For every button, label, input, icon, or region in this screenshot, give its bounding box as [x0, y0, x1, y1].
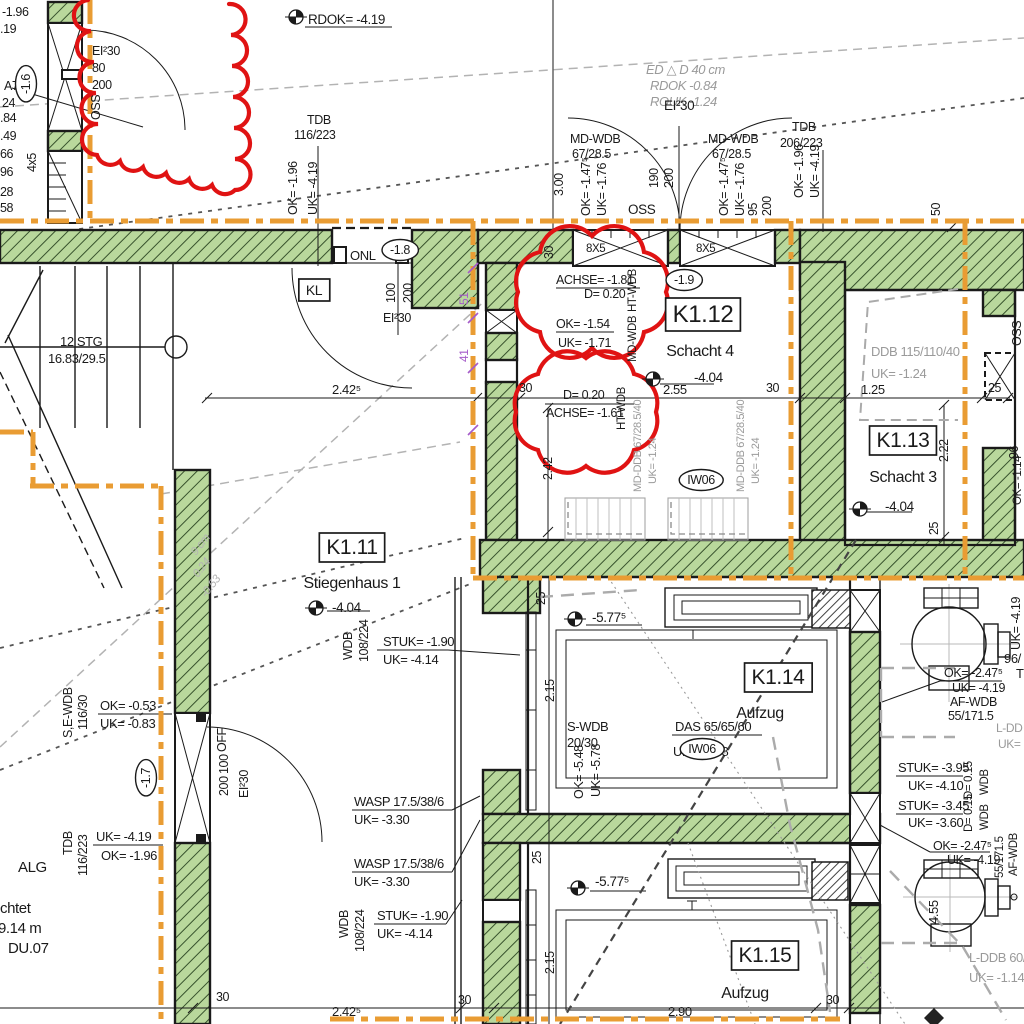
annotation-label: UK= -4.19: [96, 829, 151, 844]
annotation-label: UK= -1.14: [969, 970, 1024, 985]
annotation-label: 55/171.5: [948, 709, 994, 723]
hatched-niche: [812, 862, 848, 900]
annotation-label: 25: [988, 381, 1002, 395]
annotation-label: 200: [217, 776, 231, 796]
annotation-label: 190: [647, 168, 661, 188]
annotation-label: DU.07: [8, 940, 49, 957]
annotation-label: D= 0.20: [584, 287, 626, 301]
annotation-label: .84: [0, 111, 17, 125]
annotation-label: OK= -1.96: [286, 161, 300, 215]
annotation-label: MD-DDB 67/28.5/40: [632, 399, 644, 492]
annotation-label: DDB 115/110/40: [871, 344, 960, 359]
room-name: Aufzug: [721, 985, 768, 1002]
annotation-label: 3.00: [552, 173, 566, 196]
annotation-label: L-DDB 60/: [969, 950, 1024, 965]
room-name: Stiegenhaus 1: [303, 575, 401, 592]
annotation-label: 80: [92, 61, 106, 75]
level-annotation: RDOK= -4.19: [308, 12, 385, 27]
annotation-label: -5.77⁵: [595, 874, 629, 889]
annotation-label: 24: [2, 96, 16, 110]
annotation-label: 50: [929, 202, 943, 216]
annotation-label: MD-WDB: [627, 315, 639, 362]
level-bubble: -1.9: [674, 273, 694, 287]
annotation-label: UK= -3.30: [354, 812, 409, 827]
annotation-label: 2.42⁵: [332, 382, 361, 397]
level-bubble: -1.6: [19, 74, 33, 94]
room-level: -4.04: [885, 499, 915, 514]
annotation-label: OK= -1.47⁵: [717, 157, 731, 216]
annotation-label: 116/30: [76, 695, 90, 730]
annotation-label: ONL: [350, 248, 376, 263]
annotation-label: 25: [530, 850, 544, 864]
annotation-label: .19: [0, 22, 17, 36]
annotation-label: UK= -1.24: [871, 366, 926, 381]
room-level: -4.04: [694, 370, 724, 385]
room-tag-k1-14: K1.14: [752, 666, 806, 689]
floor-plan-canvas: -1.96.19A7-1.624.84.49669628584x5EI²3080…: [0, 0, 1024, 1024]
annotation-label: UK= -1.71: [558, 336, 611, 350]
annotation-label: 66: [0, 147, 14, 161]
annotation-label: 200: [760, 196, 774, 216]
annotation-label: .49: [0, 129, 17, 143]
annotation-label: 200: [401, 283, 415, 303]
annotation-label: EI²30: [92, 44, 120, 58]
annotation-label: 100: [217, 754, 231, 774]
annotation-label: OK= -1.14: [1012, 455, 1024, 505]
annotation-label: 108/224: [357, 619, 371, 662]
annotation-label: 2.22: [937, 439, 951, 462]
annotation-label: UK= -1.76: [595, 163, 609, 216]
annotation-label: 2.42⁵: [332, 1004, 361, 1019]
annotation-label: STUK= -3.95: [898, 760, 969, 775]
level-bubble: -1.7: [139, 768, 153, 788]
annotation-label: 25: [534, 591, 548, 605]
annotation-label: 30: [519, 381, 533, 395]
annotation-label: 116/223: [294, 128, 336, 142]
floor-plan: -1.96.19A7-1.624.84.49669628584x5EI²3080…: [0, 0, 1024, 1024]
annotation-label: 108/224: [353, 909, 367, 952]
annotation-label: TD: [1016, 666, 1024, 681]
annotation-label: WDB: [979, 769, 991, 795]
annotation-label: chtet: [0, 900, 32, 917]
annotation-label: UK= -4.19: [952, 681, 1005, 695]
annotation-label: 30: [766, 381, 780, 395]
annotation-label: 2.42: [541, 457, 555, 480]
annotation-label: STUK= -3.45: [898, 798, 969, 813]
annotation-label: RDOK -0.84: [650, 78, 717, 93]
annotation-label: OK= -1.96: [101, 848, 157, 863]
annotation-label: 16.83/29.5: [48, 351, 106, 366]
annotation-label: OK= -5.48: [572, 745, 586, 799]
wall-type-bubble: IW06: [688, 742, 716, 756]
annotation-label: WDB: [341, 632, 355, 660]
annotation-label: ACHSE= -1.81: [556, 273, 634, 287]
annotation-label: OK= -1.96: [792, 144, 806, 198]
annotation-label: MD-WDB: [708, 132, 758, 146]
annotation-label: L-DD: [996, 721, 1023, 735]
annotation-label: EI²30: [383, 311, 411, 325]
annotation-label: 51: [457, 292, 471, 305]
annotation-label: UK= -1.24: [750, 437, 762, 484]
annotation-label: TDB: [307, 113, 331, 127]
annotation-label: WDB: [979, 804, 991, 830]
annotation-label: 96: [0, 165, 14, 179]
wall-type-bubble: IW06: [687, 473, 715, 487]
annotation-label: MD-DDB 67/28.5/40: [735, 399, 747, 492]
annotation-label: TDB: [792, 120, 816, 134]
annotation-label: OK= -2.47⁵: [944, 666, 1003, 680]
annotation-label: EI²30: [237, 770, 251, 798]
annotation-label: UK= -4.14: [383, 652, 438, 667]
annotation-label: 2.55: [663, 382, 687, 397]
annotation-label: UK= -1.76: [733, 163, 747, 216]
annotation-label: 96/: [1004, 651, 1022, 666]
annotation-label: 30: [458, 993, 472, 1007]
annotation-label: 8X5: [586, 243, 605, 255]
annotation-label: 2.15: [543, 951, 557, 974]
annotation-label: OK= -1.47⁵: [579, 157, 593, 216]
annotation-label: UK= -4.10: [908, 778, 963, 793]
annotation-label: UK= -1.24: [647, 437, 659, 484]
annotation-label: TDB: [61, 831, 75, 855]
annotation-label: HT-WDB: [616, 386, 628, 430]
annotation-label: S-WDB: [567, 719, 608, 734]
annotation-label: D= 0.15: [963, 761, 975, 799]
annotation-label: MD-WDB: [570, 132, 620, 146]
annotation-label: WASP 17.5/38/6: [354, 794, 444, 809]
annotation-label: 95: [746, 202, 760, 216]
annotation-label: WDB: [337, 910, 351, 938]
annotation-label: 30: [542, 245, 556, 259]
annotation-label: D= 0.20: [563, 388, 605, 402]
room-tag-k1-12: K1.12: [673, 301, 734, 328]
annotation-label: AF-WDB: [950, 695, 997, 709]
annotation-label: S,E-WDB: [61, 687, 75, 738]
annotation-label: OK= -0.53: [100, 698, 156, 713]
annotation-label: UK= -5.78: [589, 744, 603, 797]
annotation-label: OFF: [215, 727, 229, 752]
annotation-label: UK= -4.19: [1009, 597, 1023, 650]
room-tag-k1-13: K1.13: [877, 429, 930, 452]
annotation-label: 30: [826, 993, 840, 1007]
annotation-label: 116/223: [76, 834, 90, 876]
annotation-label: UK= -4.19: [947, 853, 1000, 867]
room-name: Schacht 4: [666, 343, 734, 360]
annotation-label: UK= -3.30: [354, 874, 409, 889]
hatched-niche: [812, 590, 850, 628]
annotation-label: OSS: [1010, 321, 1024, 346]
annotation-label: STUK= -1.90: [377, 908, 448, 923]
annotation-label: -5.77⁵: [592, 610, 626, 625]
annotation-label: 2.15: [543, 679, 557, 702]
annotation-label: UK= -3.60: [908, 815, 963, 830]
annotation-label: 28: [0, 185, 14, 199]
level-bubble: -1.8: [390, 243, 410, 257]
annotation-label: 25: [927, 521, 941, 535]
annotation-label: 8X5: [696, 243, 715, 255]
annotation-label: UK= -4.14: [377, 926, 432, 941]
annotation-label: AF-WDB: [1008, 832, 1020, 876]
annotation-label: UK= -4.19: [808, 145, 822, 198]
annotation-label: ALG: [18, 859, 47, 876]
annotation-label: KL: [306, 282, 323, 298]
annotation-label: 200: [92, 78, 112, 92]
annotation-label: 55/171.5: [994, 836, 1006, 878]
annotation-label: 12 STG: [60, 334, 103, 349]
annotation-label: HT-WDB: [627, 268, 639, 312]
room-tag-k1-15: K1.15: [739, 944, 792, 967]
annotation-label: 41: [457, 349, 471, 362]
annotation-label: UK= -4.19: [306, 162, 320, 215]
annotation-label: 4.55: [926, 900, 941, 924]
annotation-label: 39.14 m: [0, 920, 41, 937]
annotation-label: D= 0.15: [963, 794, 975, 832]
annotation-label: OK= -1.54: [556, 317, 610, 331]
annotation-label: EI²30: [664, 98, 694, 113]
annotation-label: -1.96: [2, 5, 29, 19]
annotation-label: STUK= -1.90: [383, 634, 454, 649]
annotation-label: DAS 65/65/60: [675, 719, 751, 734]
annotation-label: ACHSE= -1.61: [546, 406, 624, 420]
annotation-label: 200: [662, 168, 676, 188]
annotation-label: UK=: [998, 737, 1021, 751]
annotation-label: OSS: [628, 202, 656, 217]
annotation-label: WASP 17.5/38/6: [354, 856, 444, 871]
annotation-label: 2.90: [668, 1004, 692, 1019]
room-name: Schacht 3: [869, 469, 937, 486]
annotation-label: UK= -0.83: [100, 716, 155, 731]
room-tag-k1-11: K1.11: [326, 536, 377, 559]
annotation-label: 30: [216, 990, 230, 1004]
annotation-label: 1.25: [861, 382, 885, 397]
annotation-label: OSS: [89, 95, 103, 120]
annotation-label: 100: [384, 283, 398, 303]
annotation-label: OK= -2.47⁵: [933, 839, 992, 853]
annotation-label: 58: [0, 201, 14, 215]
room-level: -4.04: [332, 600, 362, 615]
annotation-label: 4x5: [25, 153, 39, 172]
annotation-label: ED △ D 40 cm: [646, 62, 725, 77]
